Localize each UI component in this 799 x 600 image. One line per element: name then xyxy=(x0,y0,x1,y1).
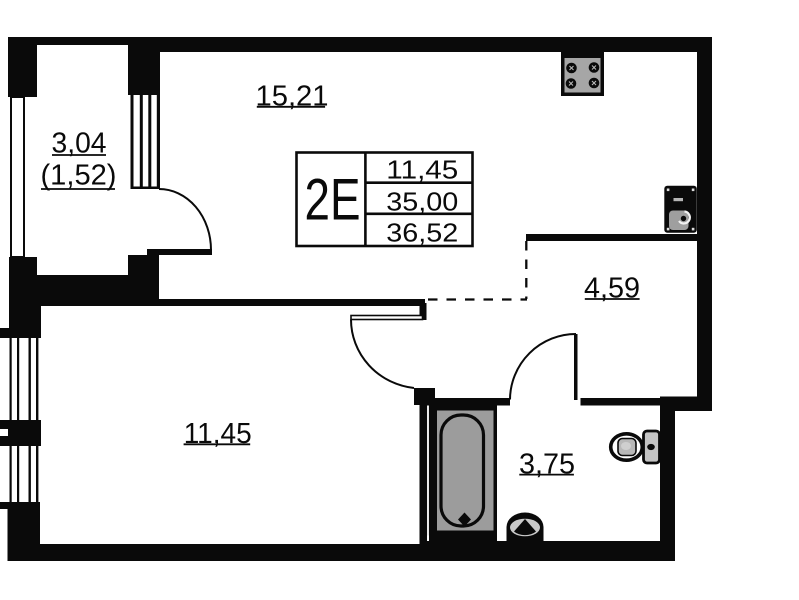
svg-text:2E: 2E xyxy=(305,168,361,233)
svg-text:(1,52): (1,52) xyxy=(41,160,117,192)
svg-text:36,52: 36,52 xyxy=(386,218,458,248)
svg-text:11,45: 11,45 xyxy=(184,418,252,450)
svg-text:11,45: 11,45 xyxy=(386,155,458,185)
svg-text:35,00: 35,00 xyxy=(386,186,458,216)
